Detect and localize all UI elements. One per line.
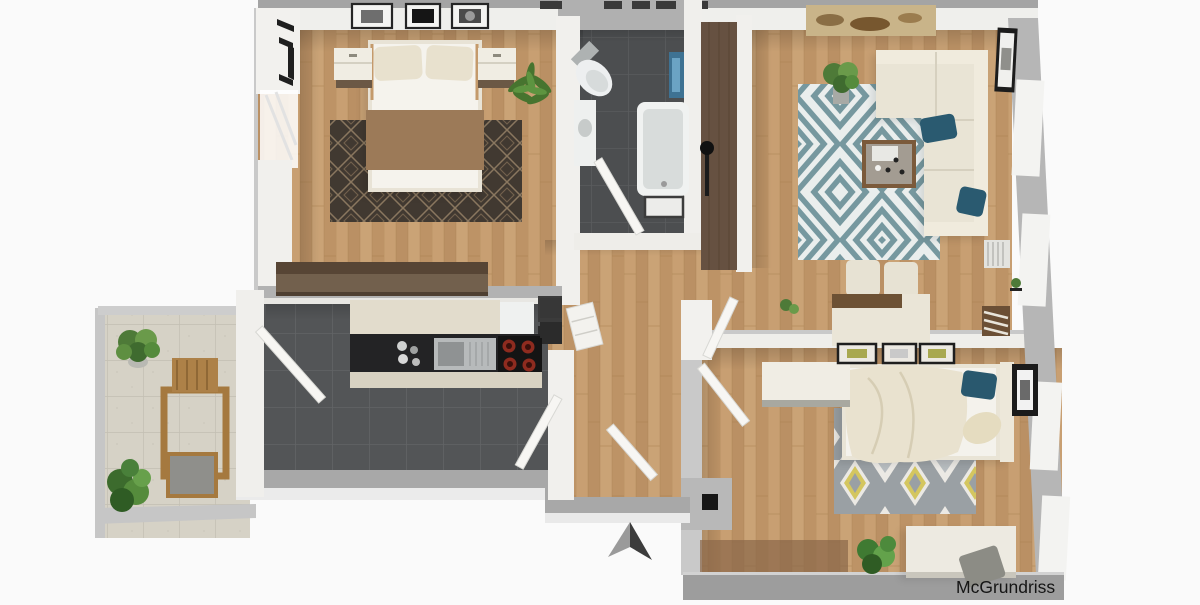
svg-text:McGrundriss: McGrundriss bbox=[956, 577, 1055, 597]
